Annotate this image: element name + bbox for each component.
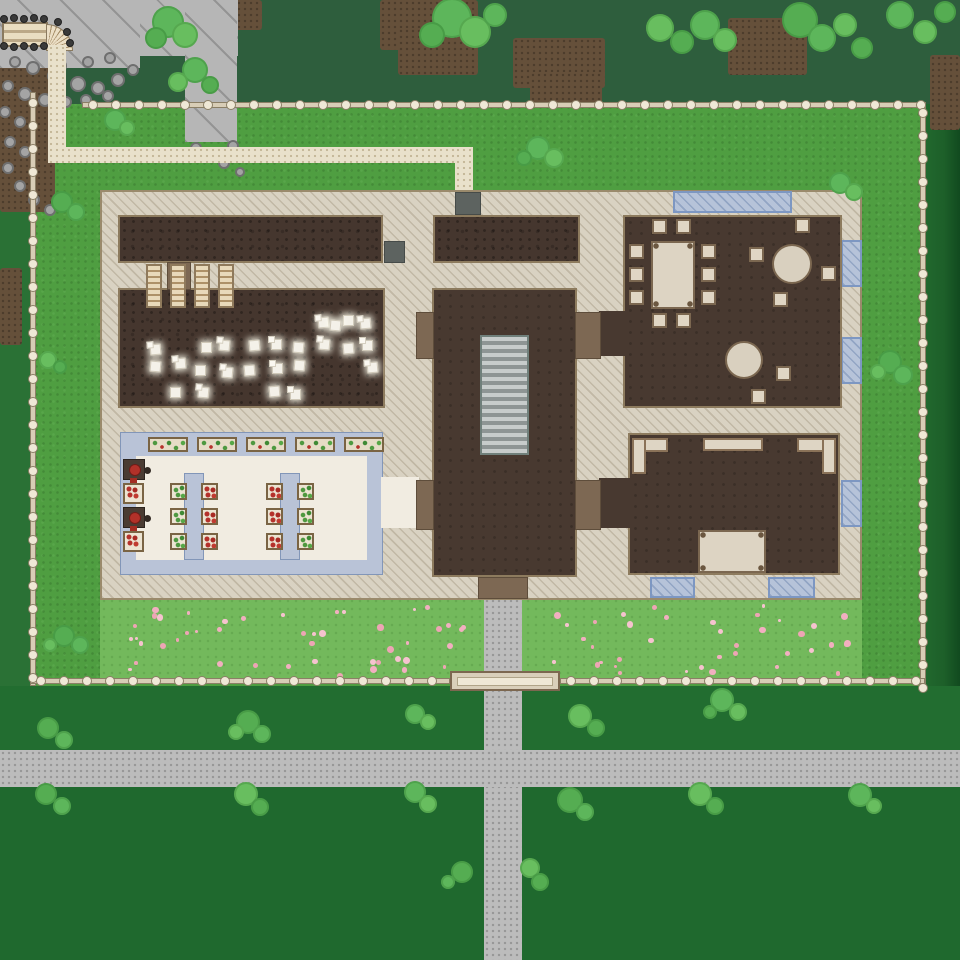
tree <box>55 731 73 749</box>
tree <box>808 24 836 52</box>
tree <box>228 724 244 740</box>
tree <box>201 76 219 94</box>
tree <box>934 1 956 23</box>
tree <box>172 22 198 48</box>
tree <box>71 636 89 654</box>
tree <box>713 28 737 52</box>
tree <box>441 875 455 889</box>
tree <box>833 13 857 37</box>
tree <box>67 203 85 221</box>
tree <box>576 803 594 821</box>
tree <box>886 1 914 29</box>
tree <box>253 725 271 743</box>
tree <box>53 797 71 815</box>
tree <box>483 3 507 27</box>
tree <box>670 30 694 54</box>
tree <box>531 873 549 891</box>
game-map <box>0 0 960 960</box>
tree <box>870 364 886 380</box>
tree <box>587 719 605 737</box>
tree <box>168 72 188 92</box>
tree <box>851 37 873 59</box>
tree <box>516 150 532 166</box>
tree <box>706 797 724 815</box>
tree <box>419 795 437 813</box>
tree <box>420 714 436 730</box>
tree <box>419 22 445 48</box>
tree <box>43 638 57 652</box>
tree <box>53 360 67 374</box>
tree <box>893 365 913 385</box>
tree <box>703 705 717 719</box>
tree <box>845 183 863 201</box>
tree <box>145 27 167 49</box>
tree <box>729 703 747 721</box>
tree <box>866 798 882 814</box>
tree <box>913 20 937 44</box>
tree <box>119 120 135 136</box>
tree-layer <box>0 0 960 960</box>
tree <box>544 148 564 168</box>
tree <box>251 798 269 816</box>
